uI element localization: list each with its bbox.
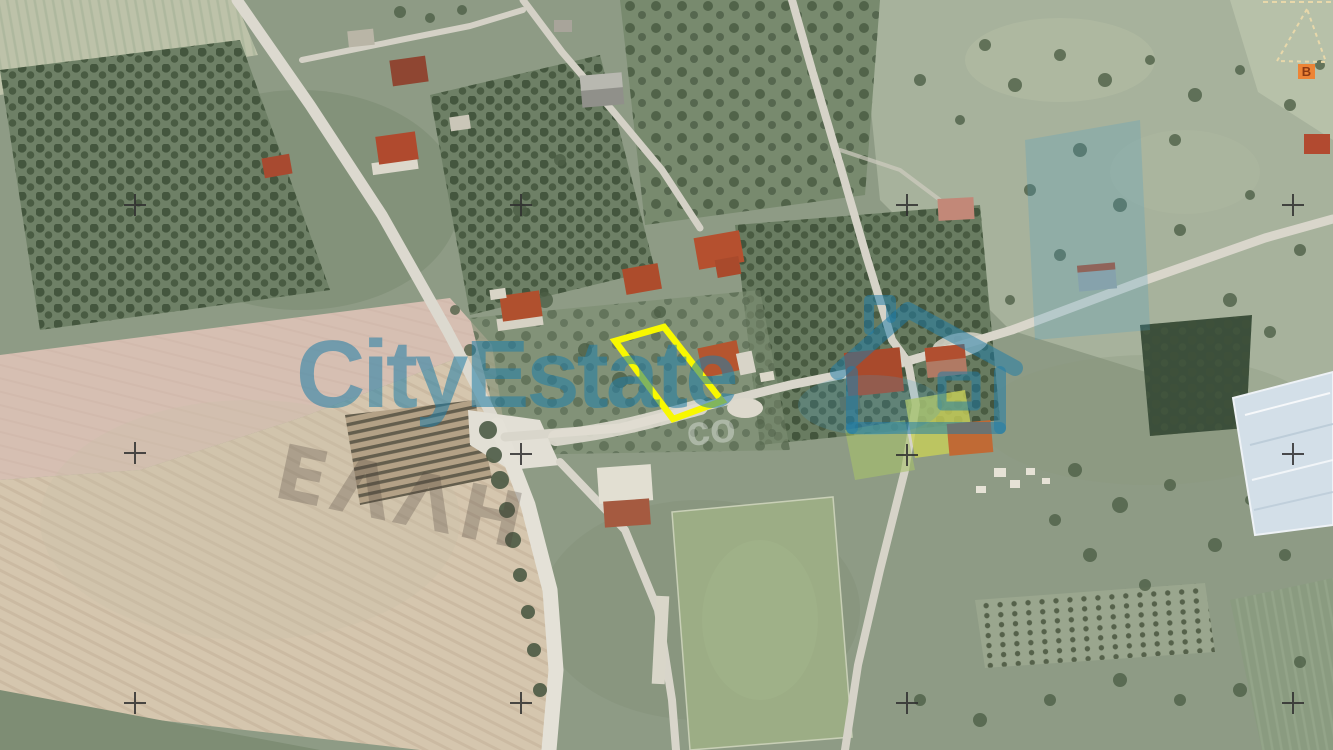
aerial-photo-viewport: B ΕΛΛΗ co CityEstate [0,0,1333,750]
marker-label: B [1302,64,1311,79]
brand-watermark-text: CityEstate [296,321,736,428]
aerial-orthophoto: B ΕΛΛΗ co CityEstate [0,0,1333,750]
football-field [672,497,852,750]
